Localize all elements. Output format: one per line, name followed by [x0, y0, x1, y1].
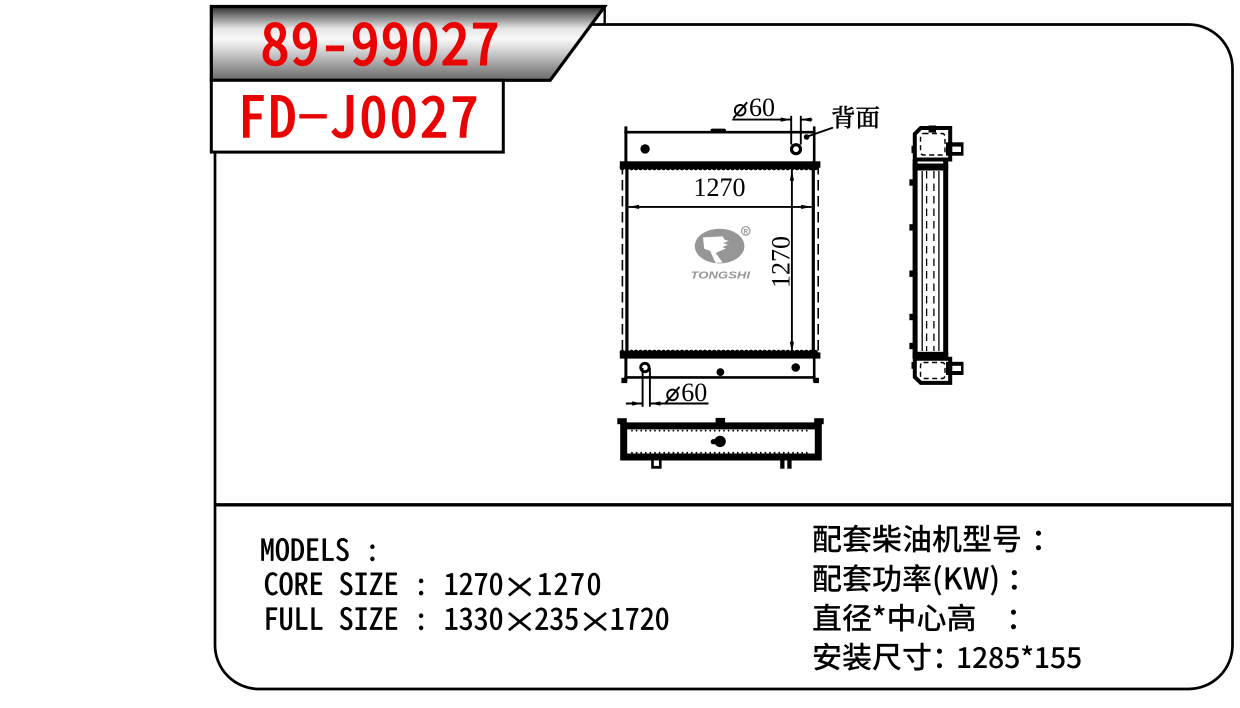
svg-text:1270: 1270	[694, 173, 746, 202]
svg-text:1270: 1270	[767, 236, 796, 288]
svg-text:TONGSHI: TONGSHI	[691, 270, 751, 281]
svg-text:R: R	[744, 229, 749, 236]
svg-text:60: 60	[749, 93, 775, 122]
svg-text:60: 60	[681, 378, 707, 407]
